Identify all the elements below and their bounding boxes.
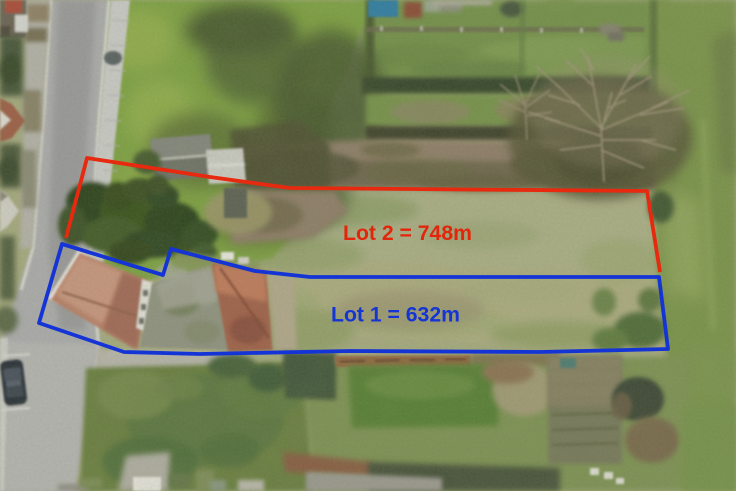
svg-text:Lot 1 = 632m: Lot 1 = 632m bbox=[331, 304, 460, 327]
svg-text:Lot 2 = 748m: Lot 2 = 748m bbox=[343, 222, 472, 245]
